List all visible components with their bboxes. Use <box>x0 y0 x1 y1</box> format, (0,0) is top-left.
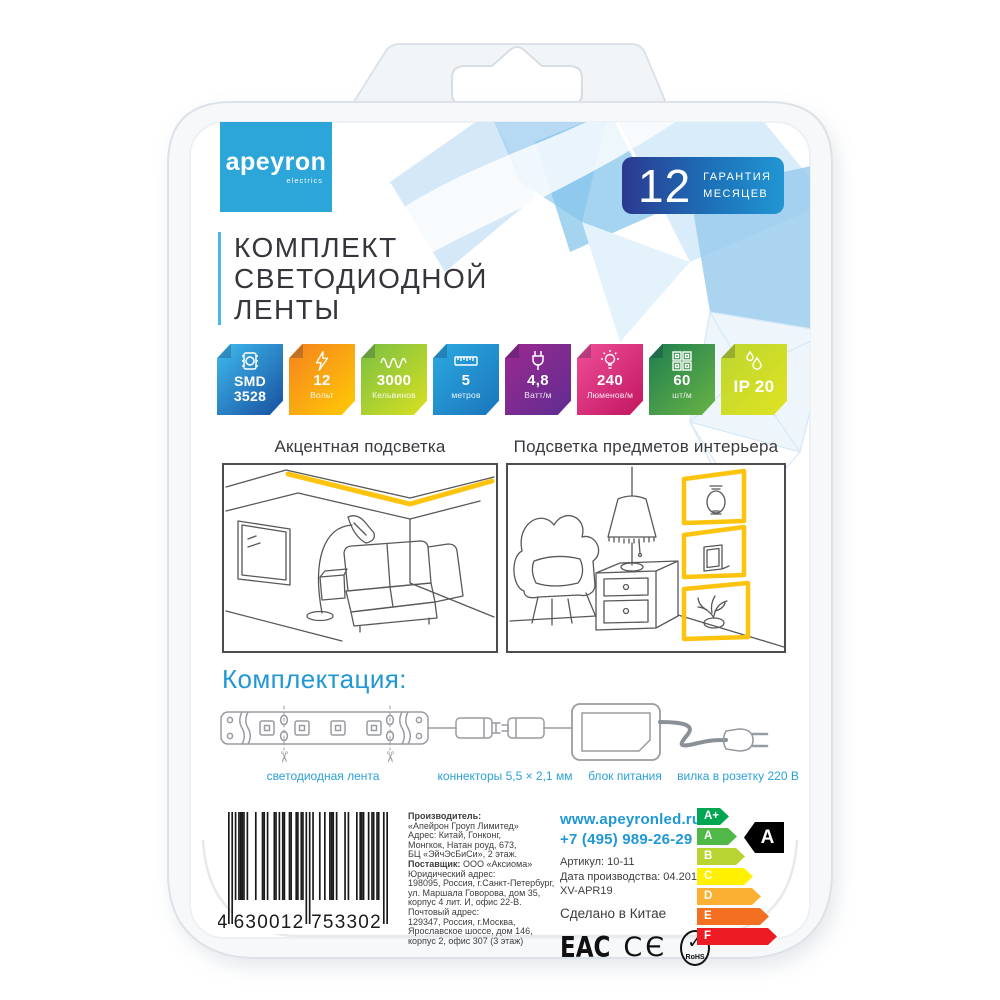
energy-row-label: C <box>697 868 712 885</box>
feature-badge-1: SMD3528 <box>217 344 283 415</box>
sku: Артикул: 10-11 <box>560 855 710 870</box>
interior-illustration <box>508 465 784 651</box>
feature-badge-4: 5метров <box>433 344 499 415</box>
energy-row-A: A <box>697 828 737 845</box>
feature-badges: SMD352812Вольт3000Кельвинов5метров4,8Ват… <box>217 344 787 415</box>
ean13-barcode: 4630012753302 <box>218 812 398 944</box>
energy-row-B: B <box>697 848 745 865</box>
scene-object-lighting <box>506 463 786 653</box>
svg-text:3: 3 <box>347 912 358 933</box>
feature-badge-8: IP 20 <box>721 344 787 415</box>
badge-value: 240 <box>597 373 623 388</box>
svg-text:2: 2 <box>370 912 381 933</box>
kit-label-strip: светодиодная лента <box>218 769 428 783</box>
energy-row-label: A+ <box>697 808 719 825</box>
scene-caption-accent: Акцентная подсветка <box>222 437 498 457</box>
badge-fold <box>217 344 231 358</box>
badge-value: 60 <box>673 373 690 388</box>
barcode-svg: 4630012753302 <box>218 812 398 944</box>
badge-label: шт/м <box>672 390 692 400</box>
badge-label: Ватт/м <box>524 390 551 400</box>
energy-efficiency-label: A+ABCDEF A <box>697 808 797 948</box>
badge-value: 12 <box>313 373 330 388</box>
drops-icon <box>742 349 766 373</box>
svg-text:4: 4 <box>218 912 228 933</box>
production-date: Дата производства: 04.2019 <box>560 870 710 885</box>
svg-text:✂: ✂ <box>381 751 398 764</box>
badge-fold <box>505 344 519 358</box>
bulb-icon <box>598 349 622 373</box>
svg-text:7: 7 <box>311 912 322 933</box>
badge-label: Вольт <box>310 390 334 400</box>
warranty-number: 12 <box>638 163 691 209</box>
energy-row-label: A <box>697 828 712 845</box>
svg-text:1: 1 <box>281 912 292 933</box>
plug-icon <box>526 349 550 373</box>
scene-caption-objects: Подсветка предметов интерьера <box>506 437 786 457</box>
badge-fold <box>721 344 735 358</box>
warranty-text: ГАРАНТИЯ МЕСЯЦЕВ <box>703 169 771 203</box>
energy-row-F: F <box>697 928 777 945</box>
batch-code: XV-APR19 <box>560 884 710 899</box>
energy-row-D: D <box>697 888 761 905</box>
contact-block: www.apeyronled.ru +7 (495) 989-26-29 Арт… <box>560 810 710 966</box>
badge-value: 3528 <box>234 389 266 403</box>
badge-fold <box>361 344 375 358</box>
feature-badge-3: 3000Кельвинов <box>361 344 427 415</box>
website-url: www.apeyronled.ru <box>560 810 710 830</box>
feature-badge-6: 240Люменов/м <box>577 344 643 415</box>
badge-fold <box>433 344 447 358</box>
feature-badge-2: 12Вольт <box>289 344 355 415</box>
kit-contents-illustration: ✂ ✂ <box>218 700 793 766</box>
svg-text:0: 0 <box>358 912 369 933</box>
warranty-badge: 12 ГАРАНТИЯ МЕСЯЦЕВ <box>622 157 784 214</box>
kit-heading: Комплектация: <box>222 664 407 695</box>
phone-number: +7 (495) 989-26-29 <box>560 830 710 850</box>
product-title: КОМПЛЕКТ СВЕТОДИОДНОЙ ЛЕНТЫ <box>218 232 488 325</box>
svg-text:2: 2 <box>293 912 304 933</box>
badge-value: SMD <box>234 374 266 388</box>
energy-row-E: E <box>697 908 769 925</box>
badge-fold <box>577 344 591 358</box>
ruler-icon <box>453 349 479 373</box>
manufacturer-info: Производитель:«Апейрон Гроуп Лимитед»Адр… <box>408 812 556 946</box>
badge-fold <box>649 344 663 358</box>
scissors-icon: ✂ ✂ <box>275 751 398 764</box>
manufacturer-line: корпус 2, офис 307 (3 этаж) <box>408 937 556 947</box>
energy-row-A+: A+ <box>697 808 729 825</box>
scene-accent-lighting <box>222 463 498 653</box>
brand-logo: apeyron electrics <box>220 122 332 212</box>
svg-text:0: 0 <box>257 912 268 933</box>
svg-text:5: 5 <box>323 912 334 933</box>
brand-logo-subtext: electrics <box>286 176 323 185</box>
eac-mark-icon: ЕАС <box>560 931 610 964</box>
energy-row-label: D <box>697 888 712 905</box>
energy-row-C: C <box>697 868 753 885</box>
certification-marks: ЕАС CЄ ✓ RoHS <box>560 930 710 966</box>
badge-value: 4,8 <box>527 373 549 388</box>
feature-badge-7: 60шт/м <box>649 344 715 415</box>
badge-label: метров <box>451 390 480 400</box>
ce-mark-icon: CЄ <box>623 932 667 963</box>
chip-icon <box>238 349 262 373</box>
brand-logo-text: apeyron <box>226 150 327 175</box>
badge-value: IP 20 <box>734 379 775 394</box>
svg-text:✂: ✂ <box>275 751 292 764</box>
energy-row-label: E <box>697 908 712 925</box>
led-grid-icon <box>670 349 694 373</box>
feature-badge-5: 4,8Ватт/м <box>505 344 571 415</box>
svg-text:6: 6 <box>234 912 245 933</box>
made-in: Сделано в Китае <box>560 906 710 921</box>
svg-text:3: 3 <box>245 912 256 933</box>
kit-diagram: ✂ ✂ <box>218 700 793 771</box>
living-room-illustration <box>224 465 496 651</box>
svg-text:0: 0 <box>269 912 280 933</box>
badge-label: Люменов/м <box>587 390 633 400</box>
svg-text:3: 3 <box>335 912 346 933</box>
wave-icon <box>379 349 409 373</box>
kit-label-plug: вилка в розетку 220 В <box>668 769 808 783</box>
badge-value: 3000 <box>377 373 412 388</box>
lightning-icon <box>311 349 333 373</box>
badge-label: Кельвинов <box>372 390 416 400</box>
badge-value: 5 <box>462 373 471 388</box>
energy-row-label: B <box>697 848 712 865</box>
product-meta: Артикул: 10-11 Дата производства: 04.201… <box>560 855 710 899</box>
package-back-panel: apeyron electrics 12 ГАРАНТИЯ МЕСЯЦЕВ КО… <box>0 0 1000 1000</box>
lit-niches-highlight <box>684 471 748 639</box>
energy-row-label: F <box>697 928 711 945</box>
led-strip-cove-highlight <box>288 474 492 504</box>
badge-fold <box>289 344 303 358</box>
